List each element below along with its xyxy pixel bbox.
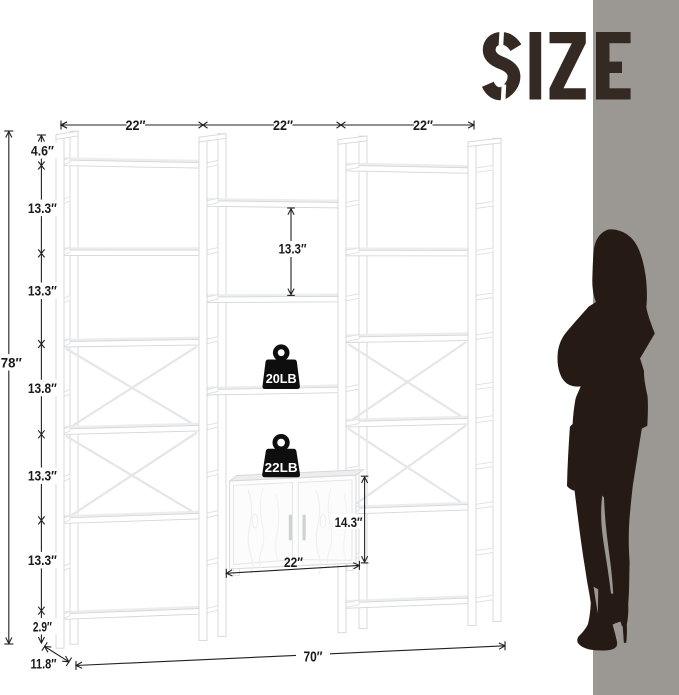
svg-text:14.3″: 14.3″ [335,515,363,530]
svg-text:11.8″: 11.8″ [31,657,57,672]
svg-text:20LB: 20LB [266,371,297,386]
svg-text:13.3″: 13.3″ [28,552,57,568]
svg-text:22″: 22″ [284,555,303,570]
svg-text:70″: 70″ [304,650,323,666]
svg-text:4.6″: 4.6″ [31,142,54,158]
svg-text:22LB: 22LB [265,460,298,475]
svg-text:22″: 22″ [413,117,433,133]
svg-text:2.9″: 2.9″ [33,618,52,634]
svg-text:78″: 78″ [1,355,22,371]
svg-text:13.3″: 13.3″ [279,242,307,257]
svg-text:22″: 22″ [273,117,293,133]
svg-text:13.3″: 13.3″ [28,468,57,484]
svg-text:13.3″: 13.3″ [28,200,57,216]
svg-text:22″: 22″ [126,117,146,133]
svg-text:13.8″: 13.8″ [28,380,57,396]
svg-text:13.3″: 13.3″ [28,283,57,299]
